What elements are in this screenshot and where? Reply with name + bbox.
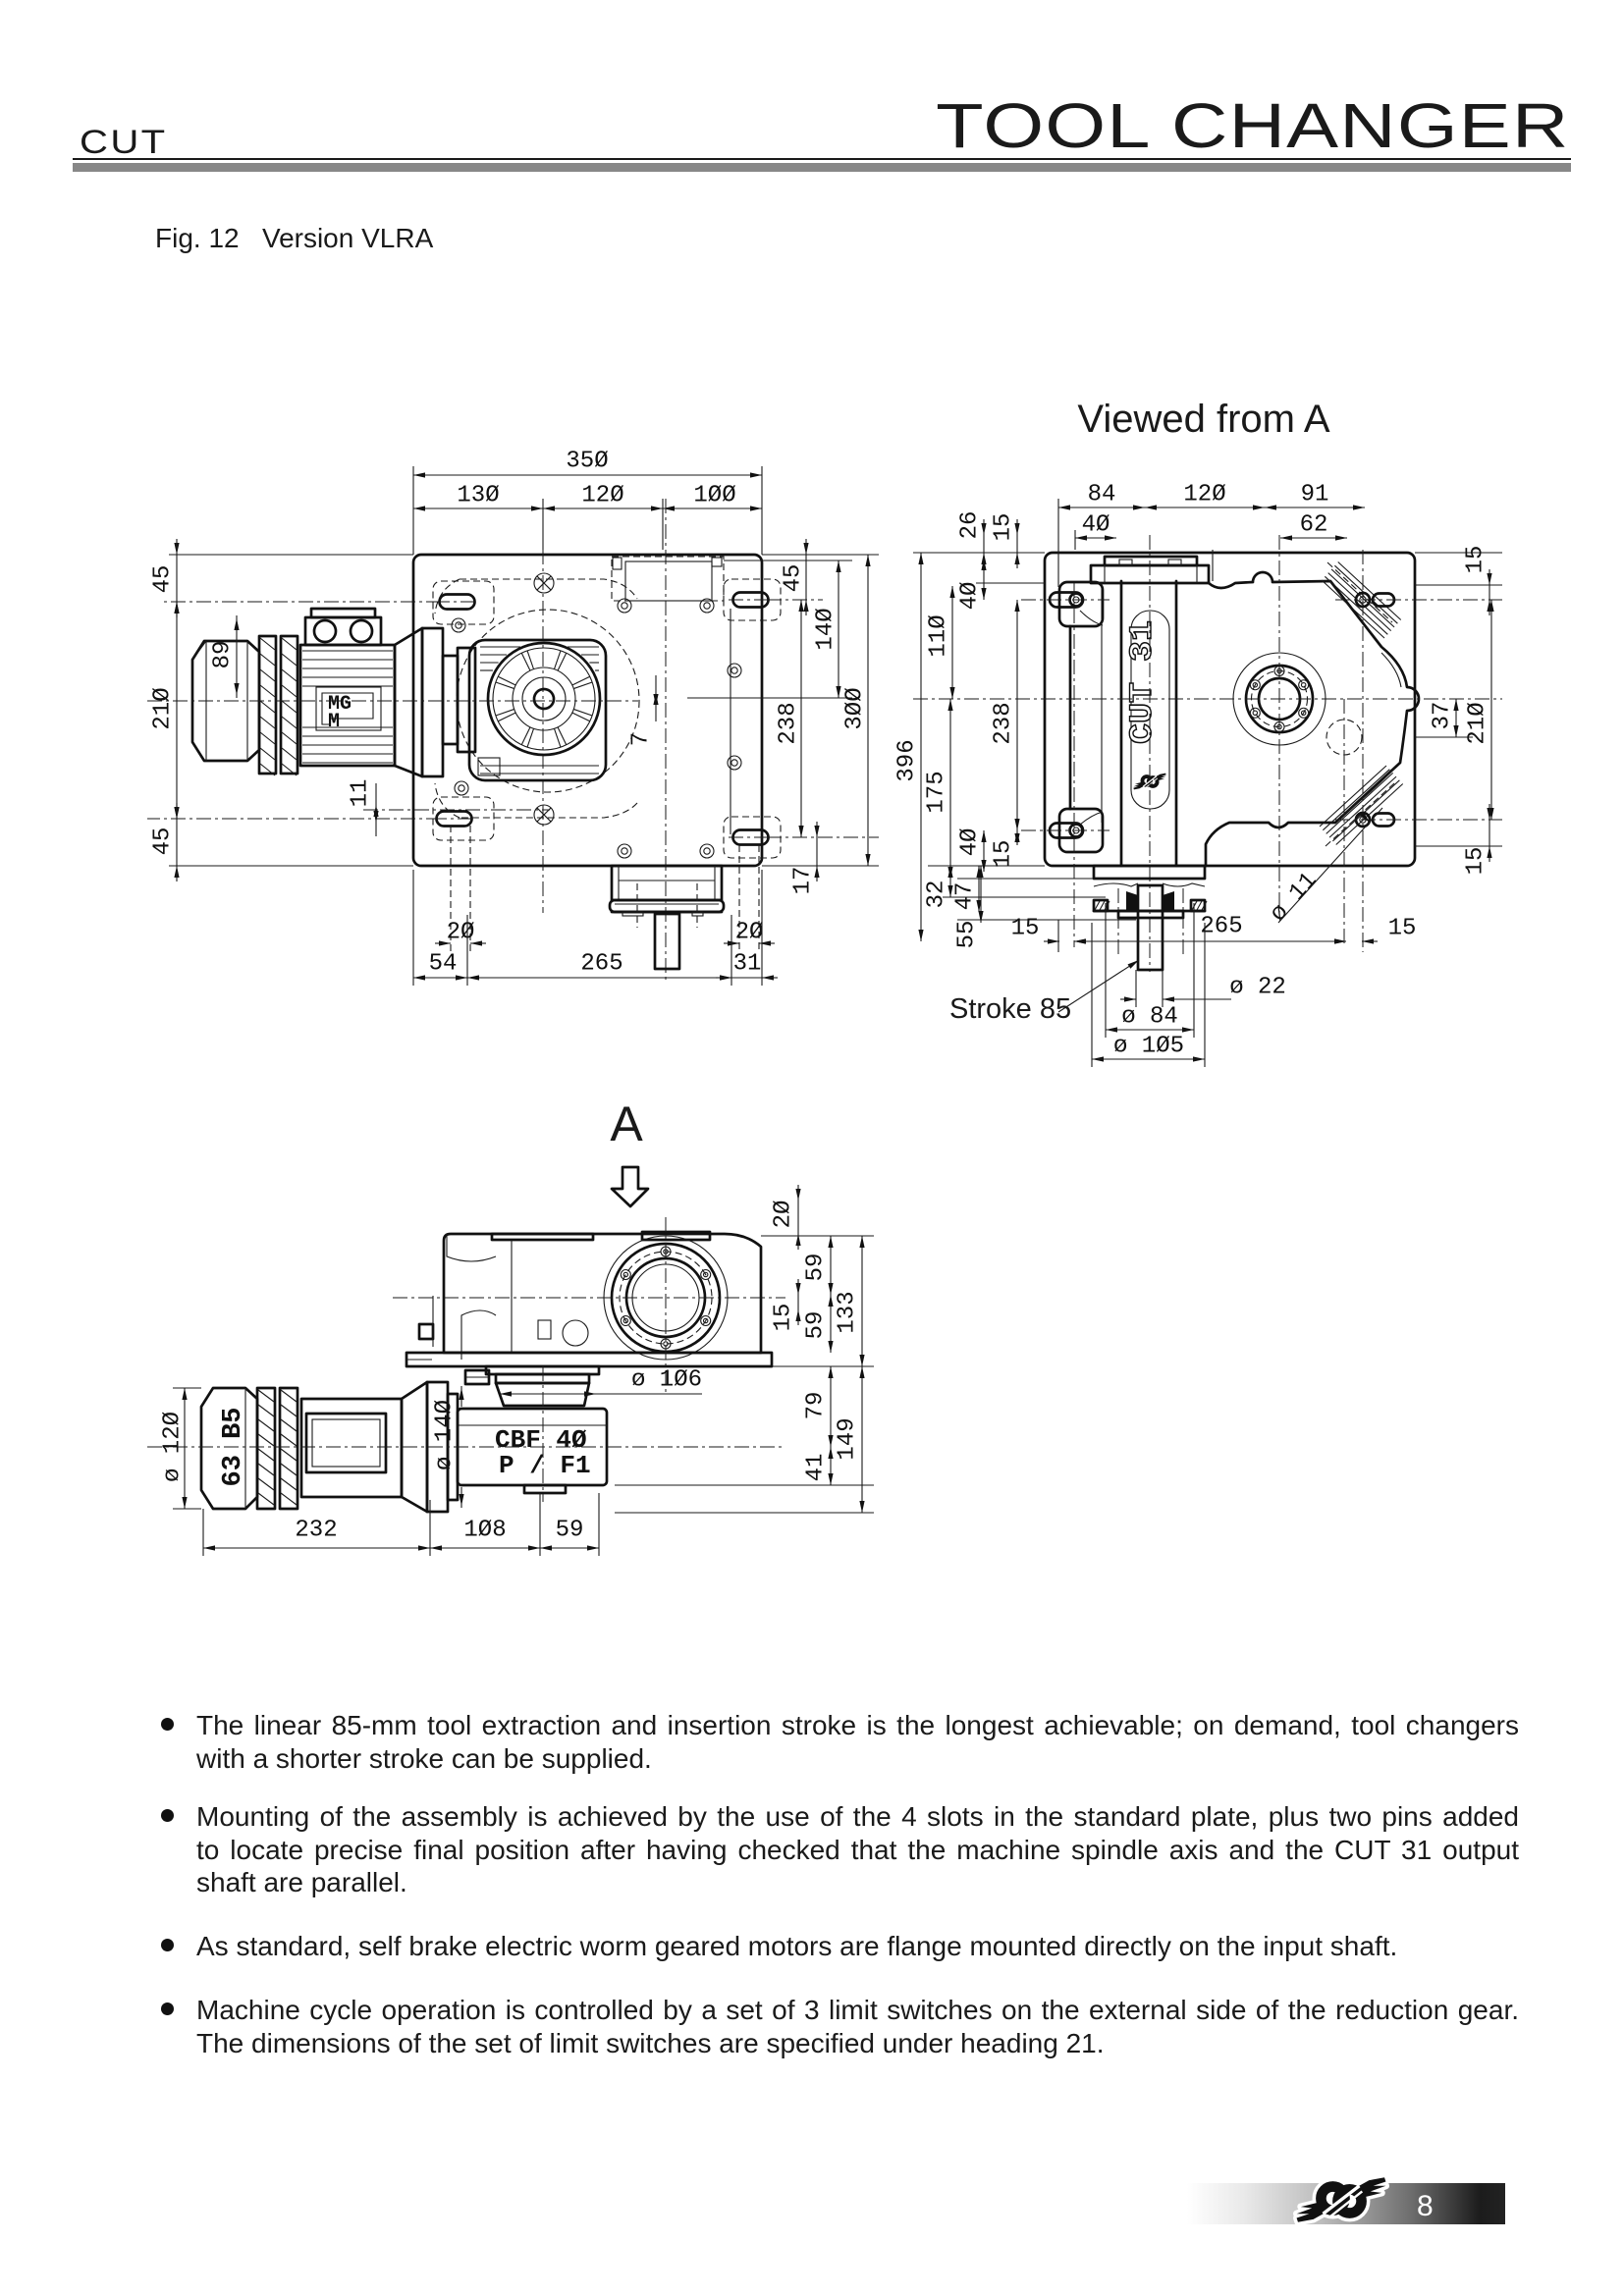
- svg-text:ø 22: ø 22: [1229, 975, 1286, 1001]
- svg-text:Stroke 85: Stroke 85: [949, 993, 1071, 1025]
- svg-text:13Ø: 13Ø: [457, 483, 499, 509]
- svg-text:26: 26: [957, 511, 984, 540]
- svg-text:54: 54: [429, 951, 458, 978]
- svg-text:45: 45: [781, 564, 807, 593]
- svg-text:11Ø: 11Ø: [926, 614, 952, 657]
- svg-text:14Ø: 14Ø: [813, 608, 839, 650]
- svg-text:41: 41: [803, 1454, 830, 1482]
- svg-text:37: 37: [1430, 702, 1456, 730]
- svg-text:11: 11: [348, 779, 374, 808]
- svg-text:ø 14Ø: ø 14Ø: [432, 1400, 459, 1470]
- svg-text:175: 175: [924, 771, 950, 813]
- svg-text:15: 15: [991, 840, 1017, 869]
- svg-text:15: 15: [1463, 546, 1489, 574]
- svg-text:17: 17: [790, 867, 817, 895]
- svg-text:47: 47: [952, 882, 979, 911]
- svg-text:21Ø: 21Ø: [150, 687, 177, 729]
- svg-text:1ØØ: 1ØØ: [693, 483, 735, 509]
- svg-text:79: 79: [803, 1392, 830, 1420]
- svg-text:15: 15: [1388, 916, 1417, 942]
- svg-text:265: 265: [1200, 914, 1242, 940]
- svg-text:15: 15: [1011, 916, 1040, 942]
- svg-text:62: 62: [1300, 512, 1328, 539]
- svg-text:1Ø8: 1Ø8: [463, 1518, 506, 1544]
- svg-text:59: 59: [803, 1254, 830, 1282]
- svg-text:238: 238: [991, 702, 1017, 744]
- svg-text:2Ø: 2Ø: [771, 1201, 797, 1229]
- svg-text:4Ø: 4Ø: [957, 582, 984, 611]
- svg-text:55: 55: [954, 921, 981, 949]
- svg-text:ø 12Ø: ø 12Ø: [160, 1412, 187, 1482]
- svg-text:59: 59: [803, 1311, 830, 1340]
- svg-text:4Ø: 4Ø: [957, 828, 984, 857]
- svg-text:P / F1: P / F1: [499, 1451, 591, 1480]
- svg-text:21Ø: 21Ø: [1465, 702, 1491, 744]
- svg-text:149: 149: [835, 1417, 861, 1460]
- svg-text:15: 15: [1463, 847, 1489, 876]
- svg-text:12Ø: 12Ø: [581, 483, 623, 509]
- svg-text:15: 15: [991, 513, 1017, 542]
- svg-text:32: 32: [924, 881, 950, 909]
- svg-text:ø 11: ø 11: [1266, 868, 1324, 928]
- svg-text:232: 232: [295, 1518, 337, 1544]
- svg-text:396: 396: [894, 739, 921, 781]
- svg-text:59: 59: [556, 1518, 584, 1544]
- svg-text:2Ø: 2Ø: [735, 920, 764, 946]
- svg-text:238: 238: [776, 702, 802, 744]
- svg-text:M: M: [328, 711, 340, 733]
- svg-text:45: 45: [150, 828, 177, 856]
- svg-text:265: 265: [580, 951, 623, 978]
- svg-text:31: 31: [733, 951, 762, 978]
- svg-text:133: 133: [835, 1291, 861, 1333]
- svg-text:89: 89: [210, 641, 237, 669]
- svg-text:35Ø: 35Ø: [566, 449, 608, 475]
- svg-text:ø 1Ø6: ø 1Ø6: [631, 1367, 702, 1394]
- svg-text:84: 84: [1088, 482, 1116, 508]
- svg-text:15: 15: [771, 1304, 797, 1332]
- svg-text:91: 91: [1301, 482, 1329, 508]
- svg-text:4Ø: 4Ø: [1082, 512, 1110, 539]
- svg-text:45: 45: [150, 565, 177, 594]
- svg-text:3ØØ: 3ØØ: [842, 687, 869, 729]
- svg-text:CUT 31: CUT 31: [1124, 620, 1161, 744]
- svg-text:12Ø: 12Ø: [1183, 482, 1225, 508]
- svg-text:2Ø: 2Ø: [447, 920, 475, 946]
- svg-text:A: A: [610, 1096, 643, 1151]
- svg-text:7: 7: [628, 732, 655, 746]
- svg-text:ø 84: ø 84: [1121, 1004, 1178, 1031]
- svg-text:ø 1Ø5: ø 1Ø5: [1113, 1034, 1184, 1060]
- svg-text:Viewed from A: Viewed from A: [1077, 398, 1329, 441]
